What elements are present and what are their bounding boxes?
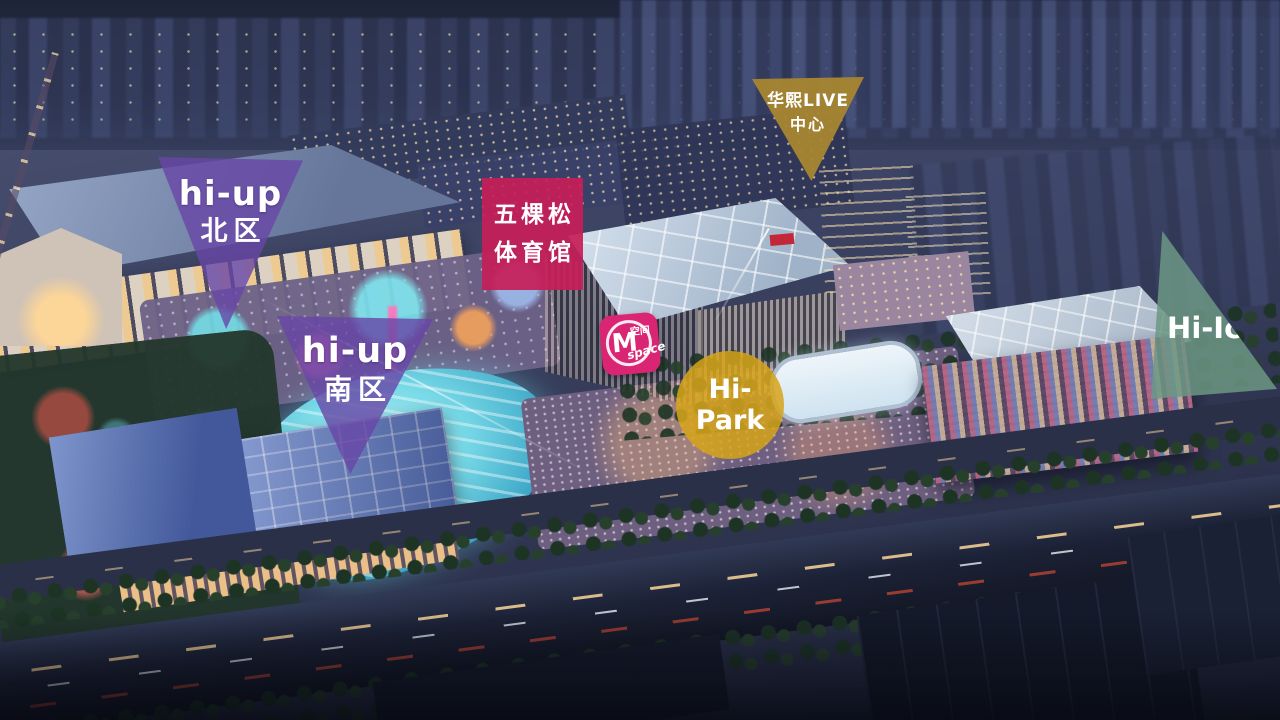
- marker-hi-park: Hi-Park: [676, 351, 784, 459]
- live-center-line2: 中心: [790, 117, 826, 133]
- arena-roof: [540, 198, 850, 333]
- aerial-night-rendering: hi-up 北区 hi-up 南区 五棵松 体育馆 华熙LIVE 中心 Hi-P…: [0, 0, 1280, 720]
- marker-hi-ice: Hi-Ice: [1151, 231, 1277, 399]
- hi-ice-building-roof: [930, 286, 1192, 386]
- distant-skyline: [0, 18, 1280, 138]
- south-mall-blue-roof-building: [49, 408, 257, 568]
- elevated-track: [0, 52, 59, 486]
- roadside-trees-upper: [0, 410, 1280, 632]
- main-avenue: [0, 464, 1280, 720]
- live-center-tower: [905, 186, 991, 298]
- live-center-tower: [819, 161, 920, 294]
- live-center-line1: 华熙LIVE: [767, 93, 849, 110]
- ice-rink: [766, 337, 927, 428]
- dark-rooftop: [856, 570, 1205, 720]
- dark-rooftop: [372, 634, 729, 720]
- left-park: [0, 327, 303, 667]
- m-space-cn: 空间: [630, 326, 651, 338]
- marker-hiup-south: hi-up 南区: [277, 316, 433, 474]
- tall-towers-right: [620, 0, 1280, 128]
- bottom-vignette: [0, 610, 1280, 720]
- south-storefronts: [116, 514, 459, 613]
- secondary-road: [0, 387, 1280, 605]
- distant-skyline-lights: [0, 26, 1280, 134]
- light-beam: [715, 228, 770, 321]
- background-city-right: [893, 134, 1280, 336]
- classical-mall-entrance: [0, 228, 122, 346]
- hiup-south-brand: hi-up: [302, 334, 408, 369]
- hiup-south-district: 南区: [318, 376, 392, 404]
- hiup-north-district: 北区: [195, 218, 267, 245]
- arena-label-line2: 体育馆: [490, 242, 575, 265]
- hi-park-label: Hi-Park: [676, 374, 784, 436]
- roadside-trees-lower: [0, 546, 1280, 720]
- hiup-north-brand: hi-up: [179, 177, 283, 211]
- m-space-logo: M 空间 space: [598, 312, 661, 377]
- marker-wukesong-arena: 五棵松 体育馆: [482, 178, 583, 290]
- hi-ice-label: Hi-Ice: [1151, 311, 1277, 345]
- marker-huaxi-live-center: 华熙LIVE 中心: [752, 77, 864, 181]
- live-center-podium: [833, 251, 975, 331]
- marker-hiup-north: hi-up 北区: [158, 157, 303, 329]
- arena-red-sign: [770, 233, 795, 246]
- arena-label-line1: 五棵松: [490, 204, 575, 227]
- dark-rooftop: [1127, 505, 1280, 676]
